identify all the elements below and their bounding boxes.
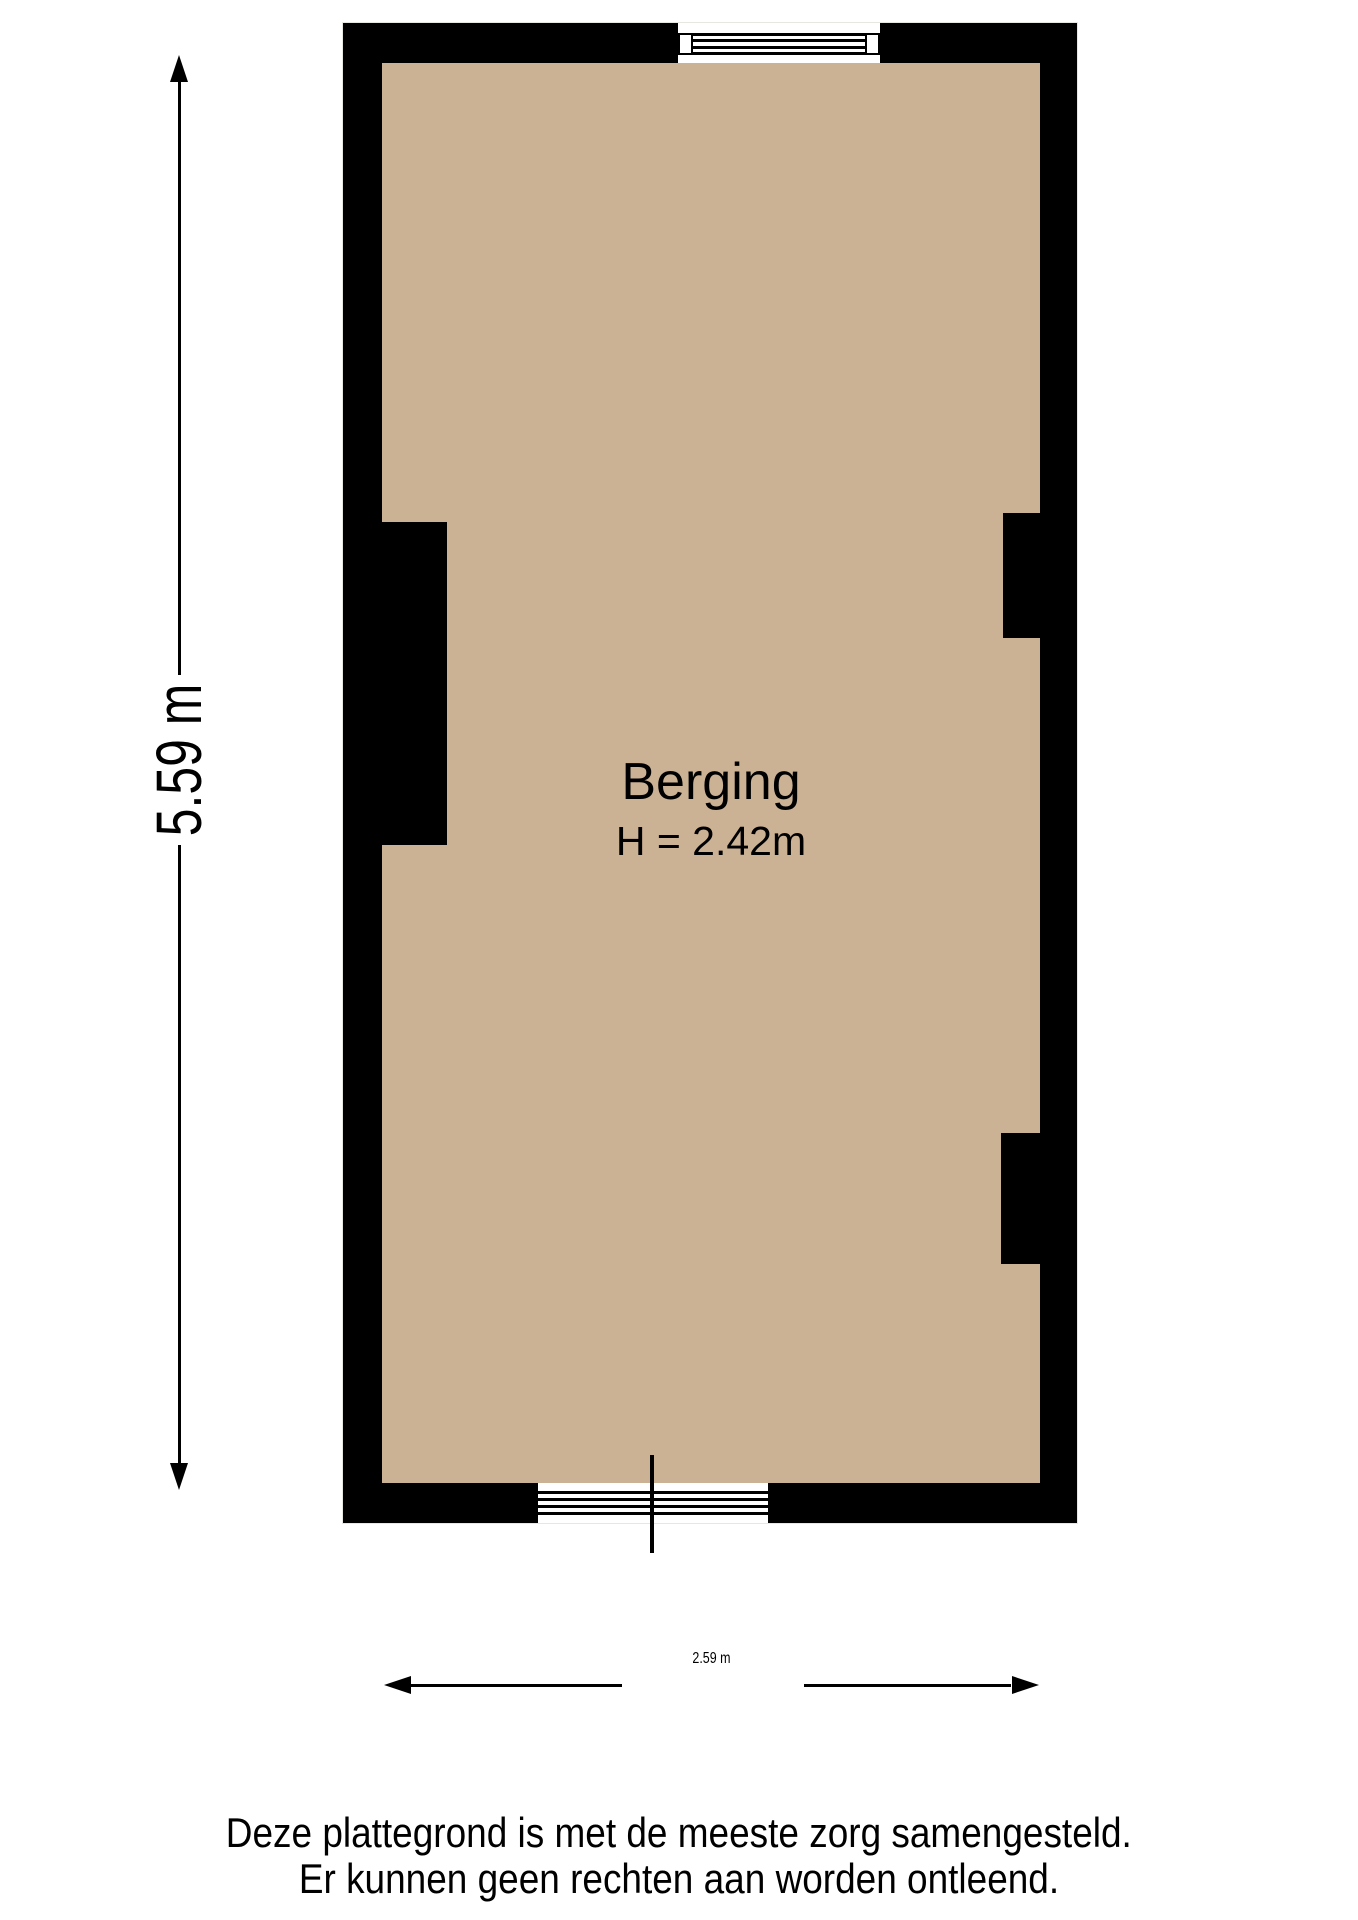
- window-glazing-icon: [693, 33, 865, 55]
- window-frame-left-cap: [678, 33, 693, 55]
- arrowhead-right-icon: [1012, 1676, 1039, 1694]
- arrowhead-left-icon: [384, 1676, 411, 1694]
- door-post-line: [650, 1455, 654, 1553]
- door-bottom: [538, 1483, 768, 1523]
- floor-plan: 5.59 m 2.59 m Berging H = 2.42m Deze pla…: [0, 0, 1358, 1920]
- dim-line-horizontal-right: [804, 1684, 1011, 1687]
- room-height-label: H = 2.42m: [382, 818, 1040, 865]
- window-frame-right-cap: [865, 33, 880, 55]
- dim-label-horizontal-wrap: 2.59 m: [384, 1650, 1039, 1668]
- dim-line-vertical-lower: [178, 845, 181, 1464]
- arrowhead-down-icon: [170, 1463, 188, 1490]
- dim-label-vertical: 5.59 m: [142, 684, 216, 837]
- dim-label-horizontal: 2.59 m: [692, 1650, 730, 1668]
- wall-pilaster-right-upper: [1003, 513, 1040, 638]
- dim-line-horizontal-left: [410, 1684, 622, 1687]
- wall-pilaster-right-lower: [1001, 1133, 1040, 1264]
- disclaimer-line-1: Deze plattegrond is met de meeste zorg s…: [0, 1810, 1358, 1856]
- disclaimer: Deze plattegrond is met de meeste zorg s…: [0, 1810, 1358, 1902]
- room-label: Berging: [382, 752, 1040, 812]
- dim-line-vertical-upper: [178, 81, 181, 675]
- disclaimer-line-2: Er kunnen geen rechten aan worden ontlee…: [0, 1856, 1358, 1902]
- arrowhead-up-icon: [170, 55, 188, 82]
- window-top: [678, 23, 880, 63]
